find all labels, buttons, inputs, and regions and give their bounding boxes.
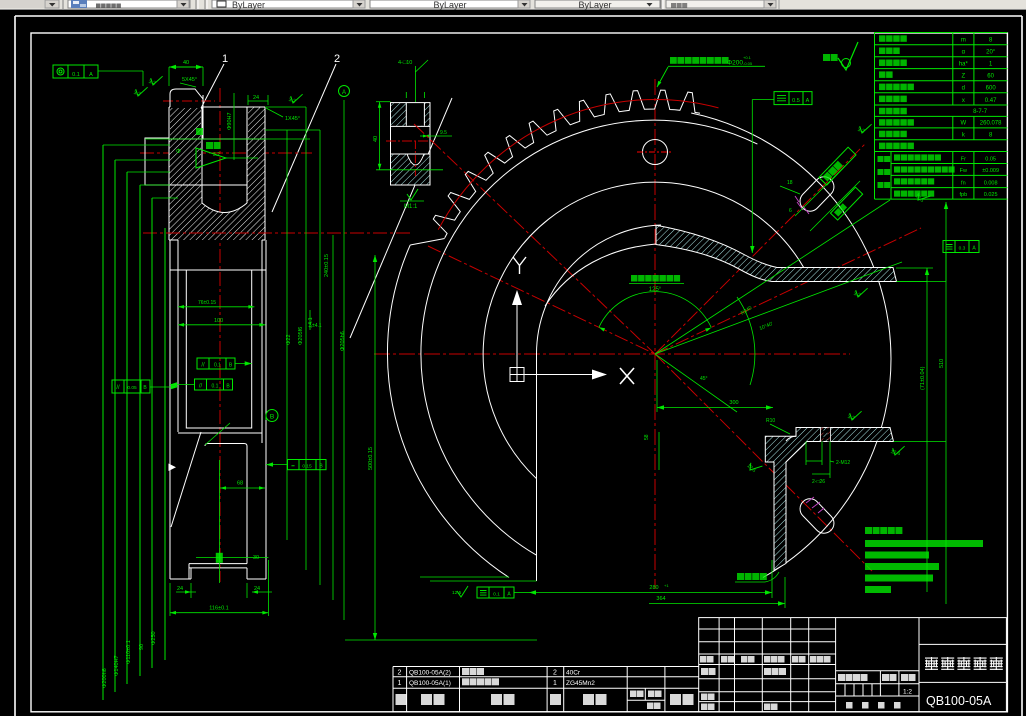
svg-text:0.1: 0.1 [214, 363, 221, 369]
svg-text:B: B [270, 414, 274, 421]
svg-text:fn: fn [961, 180, 966, 186]
svg-text:60: 60 [987, 74, 994, 80]
svg-text://: // [116, 385, 120, 391]
svg-text:ZG45Mn2: ZG45Mn2 [566, 680, 595, 687]
svg-text:Φ250: Φ250 [151, 631, 157, 645]
svg-text:240±0.15: 240±0.15 [324, 254, 330, 277]
svg-text:1: 1 [222, 53, 228, 65]
svg-text:1X45°: 1X45° [285, 116, 300, 122]
svg-text:76±0.15: 76±0.15 [198, 300, 216, 306]
svg-text:Φ140H7: Φ140H7 [114, 655, 120, 676]
svg-text:QB100-05A(1): QB100-05A(1) [409, 680, 451, 687]
svg-text:600: 600 [986, 86, 997, 92]
svg-text:5X45°: 5X45° [182, 77, 197, 83]
svg-text:300: 300 [729, 400, 738, 406]
svg-text:Φ205h6: Φ205h6 [340, 331, 346, 351]
svg-text:Φ110±0.1: Φ110±0.1 [126, 640, 132, 664]
svg-text:68: 68 [237, 481, 243, 487]
svg-text:Φ22: Φ22 [286, 334, 292, 345]
svg-text:100: 100 [214, 318, 223, 324]
svg-text:QB100-05A(2): QB100-05A(2) [409, 670, 451, 677]
svg-text:0.5: 0.5 [792, 98, 800, 104]
svg-text:A: A [342, 90, 346, 96]
svg-text:(71±0.04): (71±0.04) [920, 366, 926, 390]
svg-text:40: 40 [373, 136, 379, 142]
svg-text:2: 2 [398, 670, 402, 677]
svg-text:4-□10: 4-□10 [398, 60, 412, 66]
svg-text:0.05: 0.05 [127, 385, 137, 391]
svg-text:Φ90H7: Φ90H7 [227, 112, 233, 130]
svg-text:1: 1 [398, 680, 402, 687]
svg-text:ByLayer: ByLayer [232, 0, 265, 10]
svg-text:0.008: 0.008 [984, 180, 998, 186]
svg-text:+0.1: +0.1 [743, 55, 752, 60]
svg-text://: // [199, 384, 203, 390]
svg-text:W: W [961, 121, 967, 127]
svg-text:Φ: Φ [176, 149, 181, 155]
svg-text:125°: 125° [649, 287, 662, 293]
svg-text:±0.009: ±0.009 [982, 168, 999, 174]
svg-text:m: m [961, 38, 966, 44]
svg-text:24: 24 [253, 95, 259, 101]
svg-text:0.47: 0.47 [985, 98, 997, 104]
svg-text:Φ200: Φ200 [727, 60, 743, 67]
svg-text:±4.1: ±4.1 [312, 323, 322, 329]
svg-text:0.1: 0.1 [212, 384, 219, 390]
svg-text:6: 6 [789, 208, 792, 214]
svg-text:30: 30 [253, 555, 259, 561]
svg-text:9.5: 9.5 [440, 130, 447, 136]
svg-text:R10: R10 [766, 418, 775, 424]
svg-text:ha*: ha* [959, 61, 969, 67]
svg-text:510: 510 [939, 359, 945, 368]
svg-text:x: x [962, 98, 965, 104]
svg-text:Φ200h6: Φ200h6 [102, 668, 108, 688]
svg-text:-0.05: -0.05 [743, 61, 753, 66]
svg-text:364: 364 [656, 596, 665, 602]
svg-text:2-□26: 2-□26 [812, 479, 825, 485]
svg-text:24: 24 [254, 586, 260, 592]
svg-text:8-7-7: 8-7-7 [973, 109, 988, 115]
svg-text:+1: +1 [664, 583, 669, 588]
svg-text:0.025: 0.025 [984, 192, 998, 198]
svg-text:0.1: 0.1 [72, 72, 80, 78]
svg-text:0.3: 0.3 [959, 246, 966, 252]
svg-text:40Cr: 40Cr [566, 670, 581, 677]
svg-text:24: 24 [177, 586, 183, 592]
svg-text:0.1: 0.1 [493, 592, 500, 598]
svg-text:d: d [962, 86, 965, 92]
svg-text:40: 40 [183, 60, 189, 66]
svg-text:Z: Z [962, 74, 966, 80]
svg-text:fpb: fpb [960, 192, 968, 198]
svg-text:0.05: 0.05 [985, 156, 996, 162]
svg-text:2-M12: 2-M12 [836, 460, 850, 466]
svg-text:Φ205f6: Φ205f6 [298, 327, 304, 345]
svg-text:0.15: 0.15 [302, 464, 312, 470]
svg-text:90: 90 [139, 644, 145, 650]
svg-text:12.5: 12.5 [452, 590, 462, 596]
svg-text:20°: 20° [986, 50, 996, 56]
svg-text:A: A [806, 98, 810, 104]
svg-text:Fr: Fr [961, 156, 966, 162]
svg-text:116±0.1: 116±0.1 [209, 606, 228, 612]
svg-text:M1:1: M1:1 [404, 204, 418, 210]
svg-text:58: 58 [644, 434, 650, 440]
svg-text:2: 2 [334, 53, 340, 65]
svg-text:Fw: Fw [960, 168, 967, 174]
svg-text://: // [201, 363, 205, 369]
svg-text:A: A [89, 72, 93, 78]
svg-text:500±0.15: 500±0.15 [368, 447, 374, 470]
svg-text:α: α [962, 50, 966, 56]
svg-text:1:2: 1:2 [903, 689, 912, 696]
svg-text:280: 280 [649, 585, 658, 591]
svg-text:2: 2 [553, 670, 557, 677]
svg-text:45°: 45° [700, 376, 708, 382]
svg-text:18: 18 [787, 180, 793, 186]
svg-text:QB100-05A: QB100-05A [926, 694, 992, 708]
svg-text:ByLayer: ByLayer [578, 0, 611, 10]
svg-text:ByLayer: ByLayer [433, 0, 466, 10]
svg-text:1: 1 [553, 680, 557, 687]
svg-text:260.078: 260.078 [980, 121, 1002, 127]
